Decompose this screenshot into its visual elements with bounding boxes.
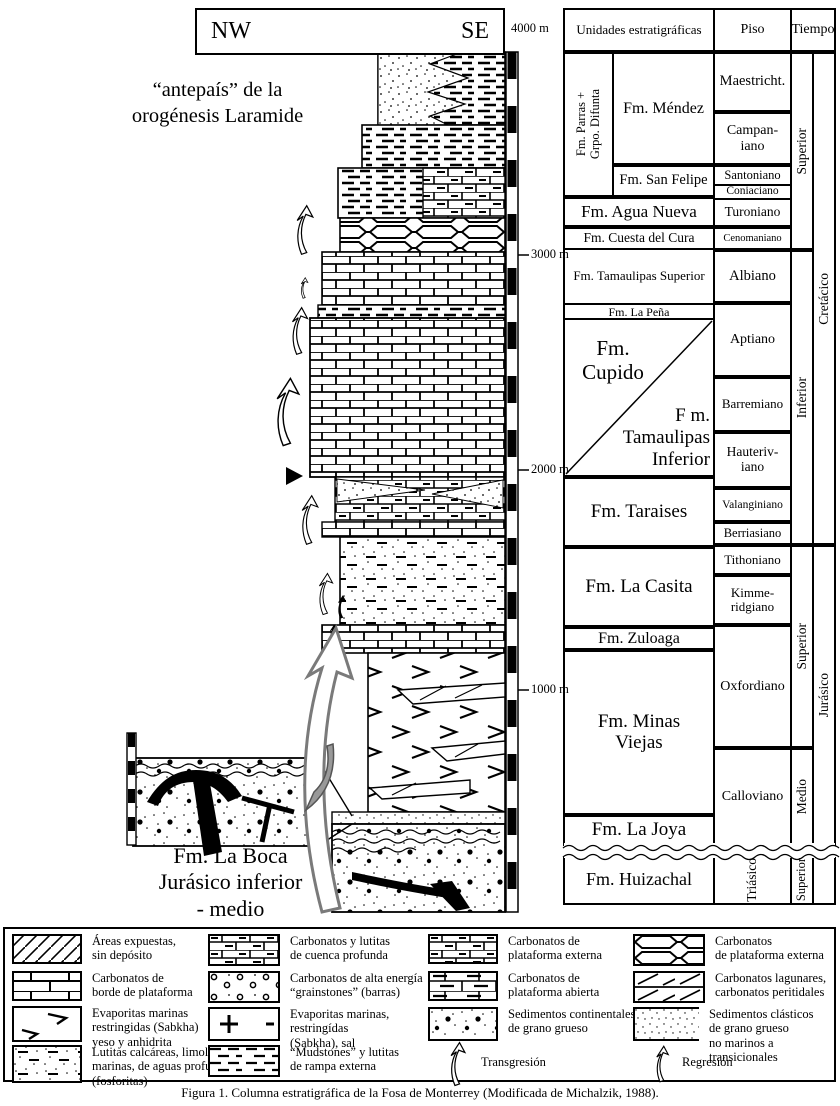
foreland-annotation: “antepaís” de la orogénesis Laramide [95, 78, 340, 129]
cell-cretacico-inferior: Inferior [790, 250, 814, 545]
fm-tamaulipas-inferior-label: F m. Tamaulipas Inferior [623, 405, 710, 471]
open-platform-brick-swatch-icon [428, 971, 498, 1001]
legend-item: Evaporitas marinas, restringídas (Sabkha… [208, 1007, 389, 1050]
cell-fm-la-casita: Fm. La Casita [563, 547, 715, 627]
cell-valanginiano: Valanginiano [713, 488, 792, 522]
parras-sandstone-tongue [378, 52, 468, 125]
legend-item: Transgresión [445, 1041, 546, 1087]
cell-fm-huizachal: Fm. Huizachal [563, 857, 715, 905]
legend-item: Áreas expuestas, sin depósito [12, 934, 176, 964]
legend-item: Sedimentos continentales de grano grueso [428, 1007, 635, 1041]
level-marker-triangle [286, 467, 303, 485]
cell-jurasico-medio: Medio [790, 748, 814, 846]
cell-tithoniano: Tithoniano [713, 545, 792, 575]
cell-cenomaniano: Cenomaniano [713, 227, 792, 250]
coarse-continental-swatch-icon [428, 1007, 498, 1041]
cell-fm-taraises: Fm. Taraises [563, 477, 715, 547]
legend-item: Carbonatos de plataforma externa [428, 934, 602, 964]
cell-cretacico-superior: Superior [790, 52, 814, 250]
main-column [310, 52, 505, 912]
cell-fm-tamaulipas-superior: Fm. Tamaulipas Superior [563, 248, 715, 305]
section-orientation-box: NW SE [195, 8, 505, 55]
regression-arrow-icon [653, 1041, 672, 1087]
se-label: SE [461, 18, 489, 45]
legend-item: Carbonatos de borde de plataforma [12, 971, 193, 1001]
cell-fm-zuloaga: Fm. Zuloaga [563, 627, 715, 650]
cell-jurasico: Jurásico [812, 545, 836, 846]
cell-aptiano: Aptiano [713, 303, 792, 377]
left-scale-bar [127, 733, 136, 845]
legend-item: Carbonatos y lutitas de cuenca profunda [208, 934, 390, 966]
legend-item: Carbonatos lagunares, carbonatos peritid… [633, 971, 826, 1003]
cell-berriasiano: Berriasiano [713, 522, 792, 545]
cell-fm-mendez: Fm. Méndez [612, 52, 715, 165]
legend-item: “Mudstones” y lutitas de rampa externa [208, 1045, 399, 1077]
cell-kimmeridgiano: Kimme- ridgiano [713, 575, 792, 625]
volcanic-dike [352, 872, 448, 898]
scale-3000m: 3000 m [531, 247, 569, 262]
cell-jurasico-superior: Superior [790, 545, 814, 748]
brick-dash-swatch-icon [208, 934, 280, 966]
la-boca-arrow [306, 744, 334, 810]
cell-albiano: Albiano [713, 250, 792, 303]
sabkha-chevrons-swatch-icon [12, 1006, 82, 1042]
cell-santoniano: Santoniano [713, 165, 792, 186]
scale-1000m: 1000 m [531, 682, 569, 697]
legend-item: Carbonatos de plataforma externa [633, 934, 824, 966]
platform-edge-brick-swatch-icon [12, 971, 82, 1001]
grainstone-circles-swatch-icon [208, 971, 280, 1003]
transgression-arrow-icon [445, 1041, 471, 1087]
cell-fm-minas-viejas: Fm. Minas Viejas [563, 650, 715, 815]
legend-box: Áreas expuestas, sin depósito Carbonatos… [3, 927, 836, 1082]
cell-fm-cuesta-del-cura: Fm. Cuesta del Cura [563, 227, 715, 250]
cell-fm-san-felipe: Fm. San Felipe [612, 165, 715, 197]
cell-triasico-superior: Superior [790, 857, 814, 905]
fm-cupido-label: Fm. Cupido [573, 336, 653, 384]
legend-item: Carbonatos de plataforma abierta [428, 971, 599, 1001]
legend-item: Regresión [653, 1041, 733, 1087]
nodular-carbonate-swatch-icon [633, 934, 705, 966]
cell-fm-agua-nueva: Fm. Agua Nueva [563, 197, 715, 227]
cell-oxfordiano: Oxfordiano [713, 625, 792, 748]
la-boca-block [127, 733, 352, 856]
cell-triasico-period-empty [812, 857, 836, 905]
diagonal-hatch-swatch-icon [12, 934, 82, 964]
scale-4000m: 4000 m [511, 21, 549, 36]
header-tiempo: Tiempo [790, 8, 836, 52]
cell-triasico: Triásico [713, 857, 792, 905]
header-unidades: Unidades estratigráficas [563, 8, 715, 52]
cell-fm-parras-difunta: Fm. Parras + Grpo. Difunta [563, 52, 614, 197]
cell-fm-cupido-tamaulipas: Fm. Cupido F m. Tamaulipas Inferior [563, 318, 715, 477]
cell-calloviano: Calloviano [713, 748, 792, 846]
legend-item: Evaporitas marinas restringidas (Sabkha)… [12, 1006, 199, 1049]
cell-hauteriviano: Hauteriv- iano [713, 432, 792, 488]
cell-campaniano: Campan- iano [713, 112, 792, 165]
lagoon-carbonate-swatch-icon [633, 971, 705, 1003]
scale-bar [506, 52, 529, 912]
figure-caption: Figura 1. Columna estratigráfica de la F… [0, 1085, 840, 1101]
la-boca-annotation: Fm. La Boca Jurásico inferior - medio [133, 843, 328, 922]
stratigraphic-figure: NW SE 4000 m 3000 m 2000 m 1000 m “antep… [0, 0, 840, 1106]
stipple-dash-swatch-icon [12, 1045, 82, 1083]
cell-fm-la-joya: Fm. La Joya [563, 815, 715, 846]
salt-plus-swatch-icon [208, 1007, 280, 1041]
header-piso: Piso [713, 8, 792, 52]
outer-platform-brick-swatch-icon [428, 934, 498, 964]
legend-item: Carbonatos de alta energía “grainstones”… [208, 971, 423, 1003]
mudstone-dashes-swatch-icon [208, 1045, 280, 1077]
cell-cretacico: Cretácico [812, 52, 836, 545]
transgression-arrows [277, 206, 345, 646]
volcanic-body [147, 770, 242, 806]
legend-item: Lutitas calcáreas, limolitas marinas, de… [12, 1045, 234, 1088]
cell-maestricht: Maestricht. [713, 52, 792, 112]
nw-label: NW [211, 18, 251, 45]
cell-barremiano: Barremiano [713, 377, 792, 432]
cell-turoniano: Turoniano [713, 198, 792, 227]
scale-2000m: 2000 m [531, 462, 569, 477]
fine-stipple-swatch-icon [633, 1007, 699, 1041]
